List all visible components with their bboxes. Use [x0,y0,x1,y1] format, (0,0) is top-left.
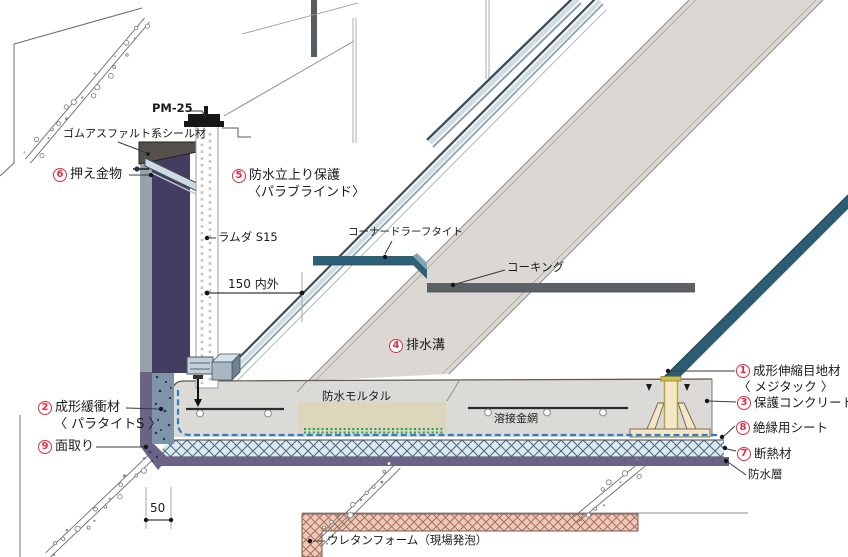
callout-pm25: PM-25 [152,101,193,116]
mortar-face [298,402,446,431]
callout-upstand-protection: 5防水立上り保護 〈パラブラインド〉 [232,167,365,201]
leader-insulation [727,449,736,451]
circled-number-8: 8 [736,421,750,435]
callout-press-metal: 6押え金物 [53,166,122,184]
drainage-channel-surface [308,0,823,381]
callout-chamfer: 9面取り [38,438,94,456]
caulking-bead [427,283,695,292]
circled-number-5: 5 [232,169,246,183]
circled-number-6: 6 [53,168,67,182]
circled-number-9: 9 [38,440,52,454]
leader-concrete [709,401,736,402]
dimension-150: 150 内外 [228,277,279,292]
callout-caulking: コーキング [507,260,564,275]
lambda-board [196,124,218,388]
insulation-band [159,440,724,457]
dimension-50: 50 [150,501,165,516]
leader-sheet [724,426,735,436]
circled-number-1: 1 [736,364,750,378]
callout-urethane-foam: ウレタンフォーム（現場発泡） [327,533,487,548]
callout-corner-drain-tight: コーナードラーフタイト [348,226,463,239]
callout-waterproof-mortar: 防水モルタル [322,389,391,404]
callout-expansion-joint: 1成形伸縮目地材 〈 メジタック 〉 [736,361,841,395]
coping-metal [427,0,581,147]
leader-wp-layer [728,462,746,475]
upper-left-wall [0,8,142,176]
circled-number-3: 3 [737,396,751,410]
circled-number-4: 4 [389,339,403,353]
circled-number-7: 7 [737,447,751,461]
callout-buffer-material: 2成形緩衝材 〈 パラタイトS 〉 [38,399,162,433]
wall-joint-bar [311,0,317,57]
callout-waterproof-layer: 防水層 [748,467,783,482]
drawing-canvas [0,0,848,557]
callout-isolation-sheet: 8絶縁用シート [736,418,828,436]
callout-drainage-channel: 4排水溝 [389,337,445,355]
leader-corner-drain [385,241,392,254]
callout-protective-concrete: 3保護コンクリート [737,393,848,411]
callout-rubber-asphalt-seal: ゴムアスファルト系シール材 [63,127,206,141]
callout-insulation: 7断熱材 [737,444,792,462]
waterproofing-detail-drawing: PM-25 ゴムアスファルト系シール材 6押え金物 5防水立上り保護 〈パラブラ… [0,0,848,557]
circled-number-2: 2 [38,401,52,415]
wall-edge-strip [140,150,152,372]
callout-welded-wire-mesh: 溶接金網 [494,412,538,426]
callout-lambda-s15: ラムダ S15 [218,230,278,245]
